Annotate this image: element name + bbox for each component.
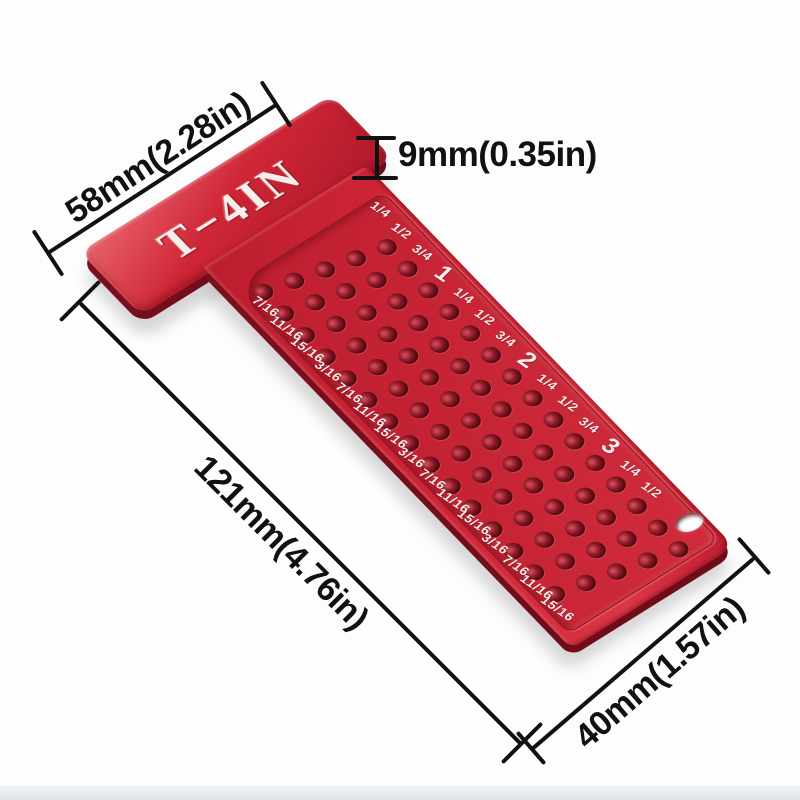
scale-label: 3/4	[492, 328, 519, 350]
dimension-tick	[260, 80, 293, 127]
scale-label: 3	[594, 433, 625, 460]
scale-label: 1	[428, 261, 459, 288]
dimension-tick	[352, 176, 398, 180]
scale-label: 1/4	[617, 457, 644, 479]
dimension-tick	[356, 136, 396, 140]
scale-label: 1/2	[388, 220, 415, 242]
scale-label: 2	[511, 347, 542, 374]
dimension-label-thickness: 9mm(0.35in)	[398, 135, 597, 175]
scale-label: 3/4	[576, 414, 603, 436]
surface-edge	[0, 786, 800, 800]
scale-label: 1/4	[534, 371, 561, 393]
dimension-tick	[32, 229, 65, 276]
dimension-line-thickness	[375, 138, 379, 180]
scale-label: 1/2	[638, 479, 665, 501]
scale-label: 1/2	[555, 393, 582, 415]
t-rule-tool: T−4IN 1/41/23/411/41/23/421/41/23/431/41…	[80, 95, 755, 691]
product-photo: T−4IN 1/41/23/411/41/23/421/41/23/431/41…	[0, 0, 800, 800]
scale-label: 1/4	[367, 198, 394, 220]
scale-label: 1/2	[471, 306, 498, 328]
scale-label: 15/16	[537, 593, 578, 624]
scale-label: 1/4	[450, 285, 477, 307]
scale-label: 3/4	[409, 242, 436, 264]
